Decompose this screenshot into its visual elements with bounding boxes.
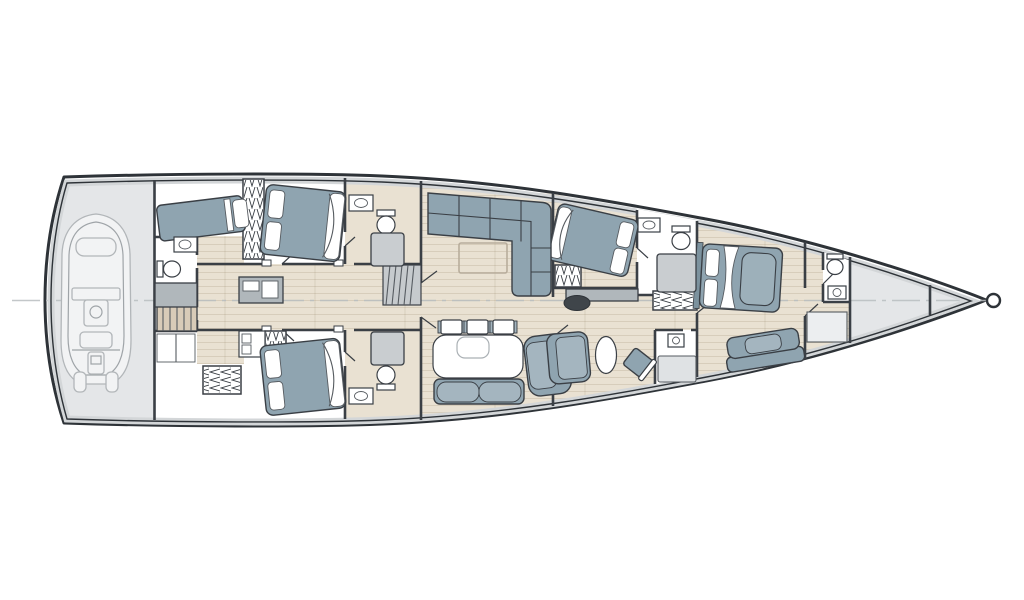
guest-bed-bottom [260,338,347,416]
bow-fitting-ring [987,294,1000,307]
dining-bench [434,379,524,404]
dining-chair [438,320,465,334]
pillow [267,381,285,410]
dining-chair [490,320,517,334]
tender-thwart [72,288,120,300]
yacht-floorplan-canvas [0,0,1024,600]
tender-bow-seat [76,238,116,256]
study-loveseat [546,331,591,384]
wardrobe-hanging-locker [653,291,697,310]
shower-tray [658,356,696,382]
sink [638,218,660,232]
pillow [703,279,718,307]
dining-chair [464,320,491,334]
pillow [264,349,282,378]
tender-dinghy [61,214,131,392]
wardrobe-hanging-locker [203,366,241,394]
tender-skid [106,372,118,392]
shower [657,254,696,292]
guest-bed-top [260,184,347,262]
crew-counter [155,283,197,307]
door-tab [334,326,343,332]
blanket [739,252,776,306]
pillow [705,249,720,277]
tender-skid [74,372,86,392]
toilet [157,261,181,277]
crew-berth-panel [807,312,847,342]
guest-vanity-top [239,277,283,303]
toilet [377,210,395,234]
toilet [672,226,690,250]
oval-table [596,337,617,374]
sink [349,388,373,404]
pillow [264,221,282,250]
tender-console [84,300,108,326]
amidships-staircase [383,265,421,305]
sink [349,195,373,211]
owner-bed [693,242,783,313]
door-tab [262,260,271,266]
guest-cabin-port [260,184,347,262]
mast [564,296,590,311]
shower [371,332,404,365]
pillow [267,190,285,219]
crew-berth-pillow [232,199,249,228]
aft-staircase [157,304,197,331]
shower [371,233,404,266]
sink [174,237,197,252]
sink [828,286,846,299]
toilet [827,254,843,275]
guest-cabin-starboard [260,338,347,416]
dining-table [433,335,523,378]
tender-aft-seat [80,332,112,348]
wardrobe-hanging-locker [555,265,581,287]
tender-outboard-engine [88,352,104,374]
sink [668,334,684,347]
deck-plan-drawing [0,0,1024,600]
aft-cabinet [157,334,195,362]
toilet [377,366,395,390]
